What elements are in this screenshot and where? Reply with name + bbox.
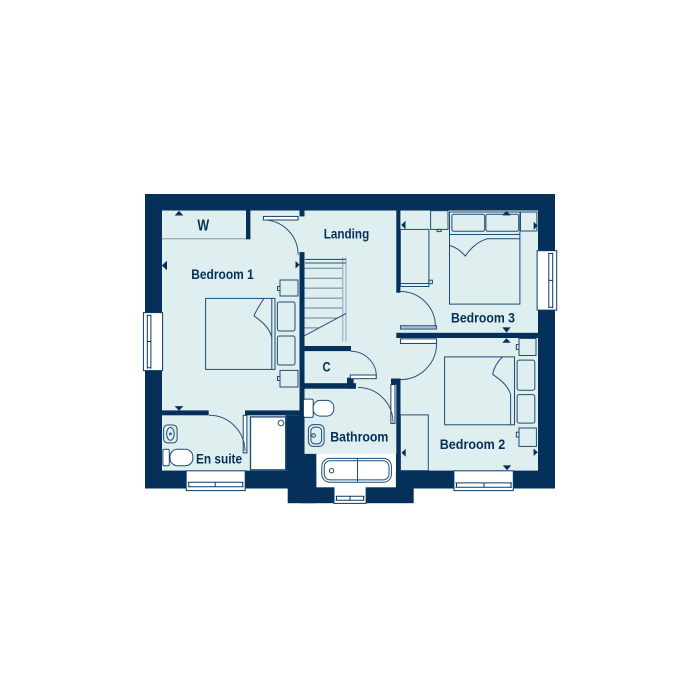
- svg-text:Bedroom 2: Bedroom 2: [440, 436, 506, 452]
- svg-text:C: C: [322, 359, 330, 374]
- svg-text:Landing: Landing: [324, 226, 369, 242]
- svg-text:W: W: [197, 217, 209, 235]
- svg-text:Bedroom 1: Bedroom 1: [191, 266, 254, 282]
- svg-text:Bedroom 3: Bedroom 3: [451, 309, 515, 325]
- svg-text:En suite: En suite: [196, 452, 243, 467]
- svg-text:Bathroom: Bathroom: [330, 428, 388, 444]
